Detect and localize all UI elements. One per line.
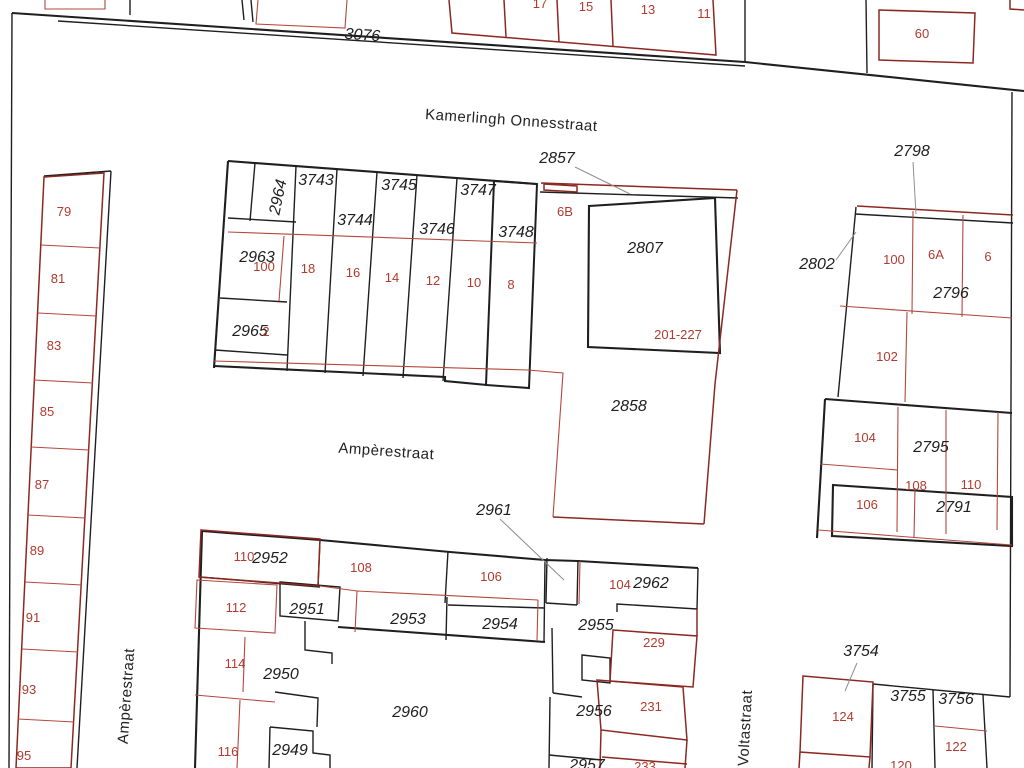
house-number: 112 — [226, 600, 247, 615]
leader-line — [845, 663, 857, 691]
house-number: 108 — [905, 478, 927, 493]
parcel-number: 3745 — [381, 177, 417, 194]
street-name: Voltastraat — [735, 689, 756, 766]
house-number: 104 — [854, 430, 876, 445]
house-number: 6B — [557, 204, 573, 219]
house-number: 17 — [533, 0, 547, 11]
parcel-number: 2957 — [568, 757, 606, 768]
house-number: 89 — [30, 543, 44, 558]
house-number: 15 — [579, 0, 593, 14]
parcel-number: 2796 — [932, 285, 969, 302]
house-number: 95 — [17, 748, 31, 763]
parcel-number: 2954 — [481, 616, 518, 633]
parcel-number: 2961 — [475, 502, 512, 519]
parcel-number: 2962 — [632, 575, 669, 592]
parcel-number: 2807 — [626, 240, 664, 257]
parcel-number: 3754 — [843, 643, 879, 660]
street-name: Kamerlingh Onnesstraat — [425, 106, 599, 135]
leader-line — [575, 167, 630, 194]
house-number: 91 — [26, 610, 40, 625]
house-number: 114 — [225, 656, 246, 671]
house-number: 10 — [467, 275, 481, 290]
house-number: 233 — [634, 759, 656, 768]
parcel-number: 2802 — [798, 256, 835, 273]
parcel-number: 3747 — [460, 182, 497, 199]
house-number: 11 — [697, 6, 711, 21]
house-number: 104 — [609, 577, 631, 592]
parcel-number: 2952 — [251, 550, 288, 567]
parcel-number: 3743 — [298, 172, 334, 189]
house-number: 231 — [640, 699, 662, 714]
house-number: 60 — [915, 26, 929, 41]
leader-line — [913, 162, 916, 214]
house-number: 79 — [57, 204, 71, 219]
house-number: 108 — [350, 560, 372, 575]
house-number: 14 — [385, 270, 399, 285]
parcel-number: 2795 — [912, 439, 949, 456]
house-number: 122 — [945, 739, 967, 754]
house-number: 16 — [346, 265, 360, 280]
street-name: Ampèrestraat — [338, 440, 435, 464]
leader-lines — [500, 162, 916, 691]
house-number: 110 — [234, 549, 255, 564]
house-number: 93 — [22, 682, 36, 697]
parcel-number: 2955 — [577, 617, 614, 634]
parcel-number: 3076 — [344, 26, 381, 45]
cadastral-map-page: Kamerlingh Onnesstraat Ampèrestraat Ampè… — [0, 0, 1024, 768]
parcel-number: 3756 — [938, 691, 974, 708]
house-number: 87 — [35, 477, 49, 492]
house-number: 6A — [928, 247, 944, 262]
house-number: 201-227 — [654, 327, 702, 342]
house-number: 100 — [883, 252, 905, 267]
house-number: 2 — [262, 324, 269, 339]
house-number: 81 — [51, 271, 65, 286]
house-number: 100 — [253, 259, 275, 274]
parcel-number: 2960 — [391, 704, 428, 721]
house-number: 110 — [961, 477, 982, 492]
parcel-number: 2956 — [575, 703, 612, 720]
house-number: 85 — [40, 404, 54, 419]
parcel-number: 2858 — [610, 398, 647, 415]
house-number: 18 — [301, 261, 315, 276]
street-names: Kamerlingh Onnesstraat Ampèrestraat Ampè… — [115, 106, 756, 767]
parcel-number: 3755 — [890, 688, 926, 705]
parcel-number: 2950 — [262, 666, 299, 683]
parcel-number: 2949 — [271, 742, 308, 759]
parcel-number: 3748 — [498, 224, 534, 241]
house-number: 6 — [984, 249, 991, 264]
parcel-number: 2964 — [266, 178, 290, 217]
house-number: 13 — [641, 2, 655, 17]
parcel-number: 2953 — [389, 611, 426, 628]
house-number: 83 — [47, 338, 61, 353]
house-number: 116 — [218, 744, 239, 759]
street-name: Ampèrestraat — [115, 647, 139, 744]
parcel-number: 2798 — [893, 143, 930, 160]
parcel-number: 3744 — [337, 212, 373, 229]
parcel-number: 2857 — [538, 150, 576, 167]
leader-line — [500, 519, 564, 580]
house-number: 12 — [426, 273, 440, 288]
parcel-number: 3746 — [419, 221, 455, 238]
house-number: 229 — [643, 635, 665, 650]
house-number: 124 — [832, 709, 854, 724]
house-number: 8 — [507, 277, 514, 292]
parcel-number: 2791 — [935, 499, 972, 516]
house-number: 120 — [890, 758, 912, 768]
house-number: 106 — [480, 569, 502, 584]
map-canvas[interactable]: Kamerlingh Onnesstraat Ampèrestraat Ampè… — [0, 0, 1024, 768]
house-number: 106 — [856, 497, 878, 512]
parcel-number: 2951 — [288, 601, 325, 618]
house-number: 102 — [876, 349, 898, 364]
